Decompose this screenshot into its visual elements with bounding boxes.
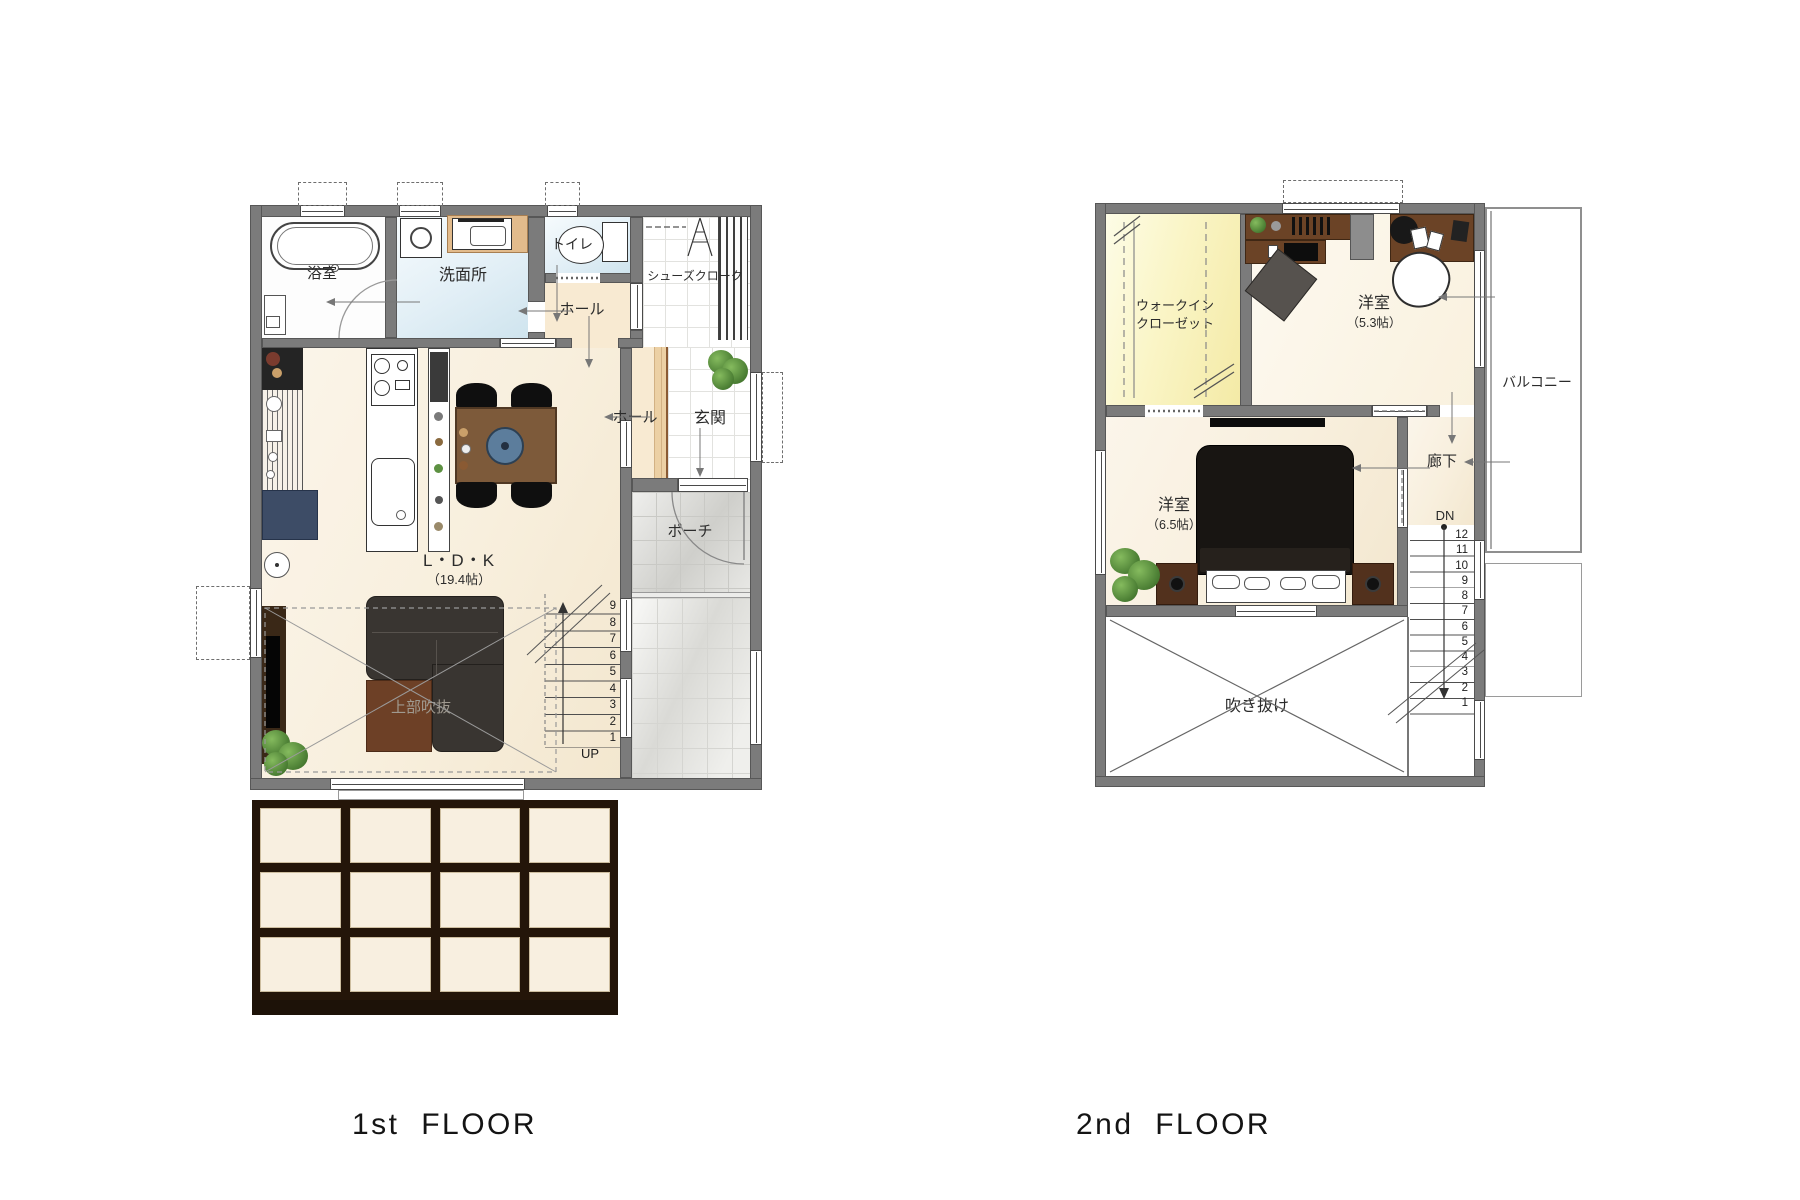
bath-door-arc: [339, 280, 397, 338]
stairs-1f-break-a: [527, 585, 602, 655]
arrow-hall-lower-head: [604, 413, 613, 421]
wic-hanger-tl-2: [1114, 216, 1140, 236]
arrow-corridor-v-head: [1448, 435, 1456, 444]
floor1-title: 1st FLOOR: [352, 1108, 537, 1142]
ladder-leg-2: [700, 218, 712, 256]
wic-hanger-br-2: [1194, 364, 1234, 390]
ladder-leg-1: [688, 218, 700, 256]
stairs-1f-break-b: [535, 593, 610, 663]
wic-hanger-tl-1: [1114, 224, 1140, 244]
dn-arrow-head: [1439, 688, 1449, 699]
arrow-bath-head: [326, 298, 335, 306]
arrow-hall-head: [585, 359, 593, 368]
plan-linework-overlay: [0, 0, 1800, 1200]
arrow-washroom-head: [518, 307, 527, 315]
stairs-2f-break-b: [1388, 643, 1476, 715]
arrow-balcony-head: [1438, 293, 1447, 301]
arrow-corridor-window-head: [1464, 458, 1473, 466]
up-arrow-head: [558, 602, 568, 613]
wic-hanger-br-1: [1194, 372, 1234, 398]
arrow-toilet-head: [553, 313, 561, 322]
floor-plan-canvas: 9 8 7 6 5 4 3 2 1 浴室 洗面: [0, 0, 1800, 1200]
arrow-entrance-head: [696, 468, 704, 477]
porch-door-arc: [672, 492, 744, 564]
arrow-bedroom65-door-head: [1352, 464, 1361, 472]
floor2-title: 2nd FLOOR: [1076, 1108, 1271, 1142]
stairs-2f-break-a: [1396, 650, 1484, 723]
